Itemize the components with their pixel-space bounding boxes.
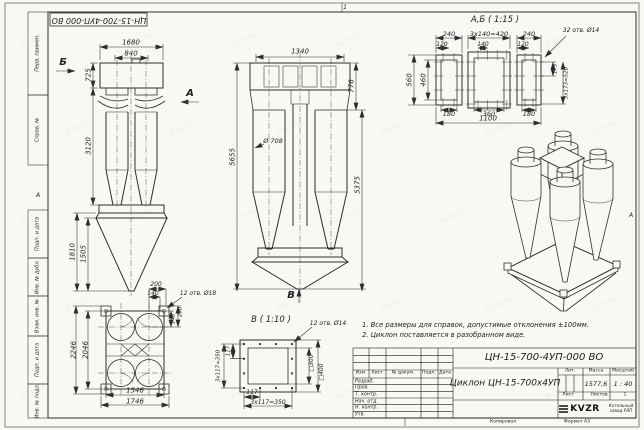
margin-label-podp-data-2: Подп. и дата bbox=[36, 343, 41, 377]
col-date: Дата bbox=[439, 372, 451, 377]
dim-725: 725 bbox=[86, 68, 93, 81]
dim-180-right: 180 bbox=[523, 110, 535, 117]
dim-140: 140 bbox=[477, 42, 488, 48]
row-prov: Пров. bbox=[355, 386, 369, 391]
dim-3120: 3120 bbox=[86, 137, 93, 155]
title-doc-number: ЦН-15-700-4УП-000 ВО bbox=[485, 353, 604, 363]
section-b-title: В ( 1:10 ) bbox=[251, 316, 291, 325]
col-docnum: № докум. bbox=[392, 372, 415, 377]
dim-560: 560 bbox=[407, 73, 414, 86]
row-nach-otd: Нач. отд. bbox=[355, 399, 378, 404]
dim-1810: 1810 bbox=[70, 243, 77, 261]
dim-240-left: 240 bbox=[443, 31, 455, 38]
dim-840: 840 bbox=[124, 51, 137, 58]
note-2: 2. Циклон поставляется в разобранном вид… bbox=[362, 331, 525, 339]
dim-460: 460 bbox=[421, 73, 428, 86]
mass-label: Масса bbox=[589, 369, 604, 374]
dim-140-right: 140 bbox=[171, 314, 177, 325]
margin-label-inv-podl: Инв. № подл. bbox=[36, 384, 41, 419]
dim-3x117-left: 3х117=350 bbox=[216, 350, 222, 382]
dim-5655: 5655 bbox=[230, 148, 237, 166]
zone-top-number: 1 bbox=[343, 5, 347, 11]
dim-3x140: 3х140=420 bbox=[470, 31, 508, 38]
title-part-name: Циклон ЦН-15-700х4УП bbox=[450, 380, 560, 389]
section-ab-title: А,Б ( 1:15 ) bbox=[471, 16, 519, 25]
dim-140-top: 140 bbox=[147, 291, 158, 297]
col-sign: Подп. bbox=[422, 372, 436, 377]
dim-117-left: 117 bbox=[226, 346, 232, 357]
sheet-label: Лист bbox=[562, 394, 574, 399]
sheets-label: Листов bbox=[590, 394, 607, 399]
row-utv: Утв. bbox=[355, 412, 365, 417]
drawing-sheet: kvzr.rukvzr.rukvzr.rukvzr.rukvzr.rukvzr.… bbox=[0, 0, 644, 430]
dim-120-right: 120 bbox=[517, 42, 528, 48]
zone-right-letter: А bbox=[629, 213, 633, 219]
dim-1100: 1100 bbox=[479, 116, 497, 123]
company-name: Котельный завод РЭП bbox=[606, 404, 636, 414]
scale-value: 1 : 40 bbox=[614, 380, 633, 387]
dim-2046: 2046 bbox=[83, 341, 90, 359]
row-n-kontr: Н. контр. bbox=[355, 406, 378, 411]
dim-1680: 1680 bbox=[122, 40, 140, 47]
view-arrow-label-b: Б bbox=[59, 58, 67, 68]
sheets-count: 1 bbox=[624, 394, 627, 399]
margin-label-podp-data-1: Подп. и дата bbox=[36, 217, 41, 251]
dim-diam-708: Ø 708 bbox=[263, 138, 283, 145]
dim-1505: 1505 bbox=[81, 245, 88, 263]
dim-3x173: 3х173=520 bbox=[564, 67, 570, 99]
dim-1746: 1746 bbox=[126, 398, 144, 405]
company-logo: KVZR bbox=[570, 404, 599, 414]
copied-label: Копировал bbox=[490, 421, 516, 426]
front-view-linework bbox=[233, 52, 366, 303]
lit-label: Лит. bbox=[565, 369, 576, 374]
isometric-view-linework bbox=[504, 131, 620, 311]
side-view-linework bbox=[56, 44, 199, 296]
col-list: Лист bbox=[371, 372, 383, 377]
dim-sq300: □300 bbox=[309, 354, 315, 371]
dim-180-left: 180 bbox=[443, 110, 455, 117]
holes-12-d18: 12 отв. Ø18 bbox=[180, 291, 216, 297]
dim-240-right: 240 bbox=[523, 31, 535, 38]
holes-12-d14: 12 отв. Ø14 bbox=[310, 321, 346, 327]
scale-label: Масштаб bbox=[612, 369, 634, 374]
row-t-kontr: Т. контр. bbox=[355, 392, 377, 397]
dim-120-left: 120 bbox=[436, 42, 447, 48]
dim-1340: 1340 bbox=[291, 49, 309, 56]
dim-2246: 2246 bbox=[71, 341, 78, 359]
holes-32-d14: 32 отв. Ø14 bbox=[563, 28, 599, 34]
zone-left-letter: А bbox=[36, 193, 40, 199]
dim-3x117-bottom: 3х117=350 bbox=[250, 400, 285, 406]
view-arrow-label-v: В bbox=[287, 291, 295, 301]
top-stamp-code: ЦН-15-700-4УП-000 ВО bbox=[51, 16, 146, 24]
dim-117-bottom: 117 bbox=[246, 390, 257, 396]
col-izm: Изм. bbox=[356, 372, 367, 377]
dim-200-right: 200 bbox=[178, 307, 184, 318]
dim-sq400: □400 bbox=[319, 363, 325, 380]
view-arrow-label-a: А bbox=[186, 89, 194, 99]
dim-173: 173 bbox=[553, 64, 559, 75]
note-1: 1. Все размеры для справок, допустимые о… bbox=[362, 321, 589, 329]
row-razrab: Разраб. bbox=[355, 379, 374, 384]
dim-200-top: 200 bbox=[150, 282, 161, 288]
margin-label-sprav-no: Справ. № bbox=[36, 118, 41, 142]
margin-label-perv-primen: Перв. примен. bbox=[36, 34, 41, 72]
dim-5375: 5375 bbox=[355, 176, 362, 194]
margin-label-inv-dubl: Инв. № дубл. bbox=[36, 260, 41, 294]
mass-value: 1577,6 bbox=[585, 380, 608, 387]
dim-776: 776 bbox=[349, 79, 356, 92]
margin-label-vzam-inv: Взам. инв. № bbox=[36, 299, 41, 333]
section-b-linework bbox=[221, 327, 321, 409]
dim-1546: 1546 bbox=[126, 388, 144, 395]
format-label: Формат А3 bbox=[564, 421, 590, 426]
